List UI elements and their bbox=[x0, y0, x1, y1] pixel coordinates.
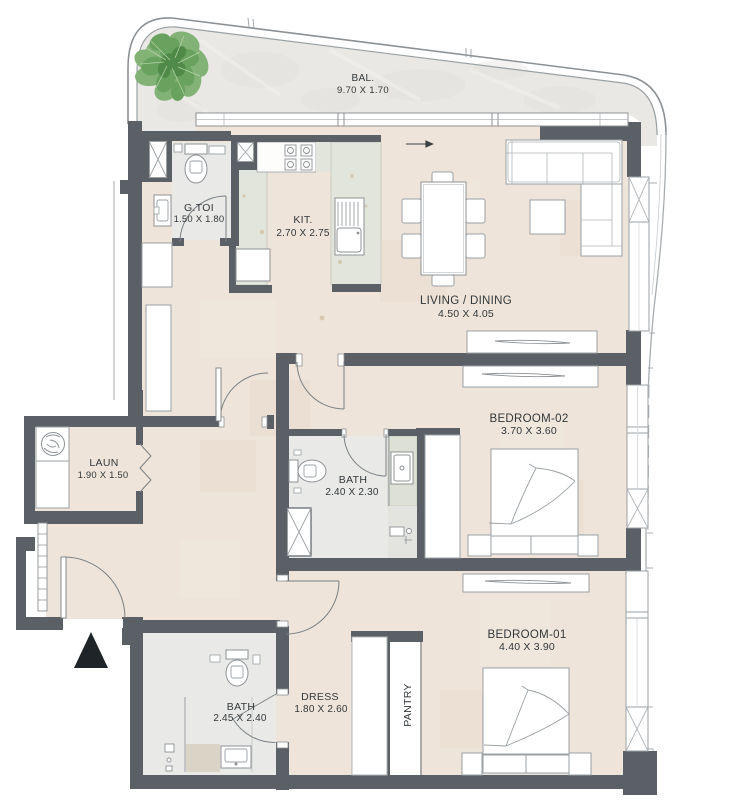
svg-text:3.70 X 3.60: 3.70 X 3.60 bbox=[501, 425, 557, 437]
svg-text:2.70 X 2.75: 2.70 X 2.75 bbox=[276, 228, 330, 239]
svg-text:1.80 X 2.60: 1.80 X 2.60 bbox=[294, 704, 348, 715]
svg-text:G.TOI: G.TOI bbox=[184, 202, 214, 214]
svg-text:4.50 X 4.05: 4.50 X 4.05 bbox=[438, 308, 494, 320]
svg-text:BEDROOM-02: BEDROOM-02 bbox=[489, 413, 568, 425]
svg-text:LAUN: LAUN bbox=[89, 457, 118, 469]
svg-text:LIVING / DINING: LIVING / DINING bbox=[420, 295, 512, 307]
svg-text:DRESS: DRESS bbox=[301, 691, 339, 703]
svg-text:BEDROOM-01: BEDROOM-01 bbox=[487, 629, 566, 641]
svg-text:4.40 X 3.90: 4.40 X 3.90 bbox=[499, 641, 555, 653]
svg-text:BATH: BATH bbox=[227, 701, 255, 713]
svg-text:PANTRY: PANTRY bbox=[402, 683, 414, 726]
svg-text:9.70 X 1.70: 9.70 X 1.70 bbox=[337, 85, 389, 96]
svg-text:2.45 X 2.40: 2.45 X 2.40 bbox=[213, 713, 267, 724]
svg-text:KIT.: KIT. bbox=[293, 214, 312, 226]
svg-text:2.40 X 2.30: 2.40 X 2.30 bbox=[325, 487, 379, 498]
svg-text:1.90 X 1.50: 1.90 X 1.50 bbox=[78, 470, 129, 481]
svg-text:BATH: BATH bbox=[339, 474, 367, 486]
svg-text:BAL.: BAL. bbox=[352, 73, 375, 84]
svg-text:1.50 X 1.80: 1.50 X 1.80 bbox=[174, 214, 225, 225]
